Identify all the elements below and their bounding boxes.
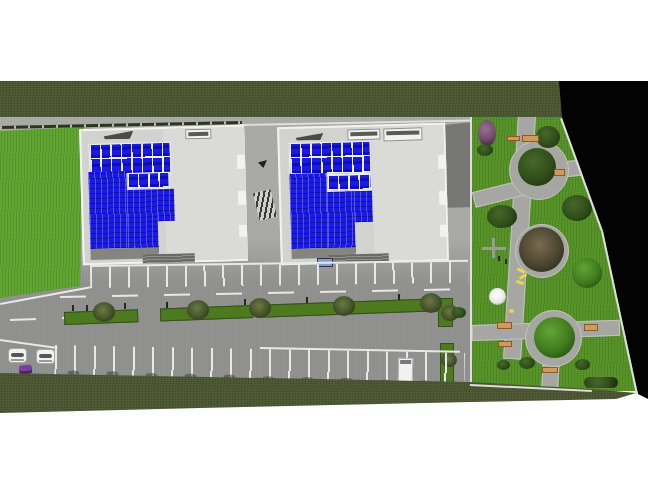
plaza-2-tree [519,227,564,272]
parapet-step [237,155,245,169]
bollard [86,305,88,311]
skylight-panel-row [126,172,169,190]
playground-item [505,259,507,264]
parapet-step [239,225,247,237]
helicopter-toy-icon [492,238,495,258]
playground-item [498,256,500,261]
garden-bush [519,357,535,369]
blue-glazing [354,191,373,222]
roof-box [383,127,422,141]
flowering-tree [478,120,496,146]
median-tree [249,298,271,318]
bollard [306,297,308,303]
playground-dome [489,288,506,305]
blue-glazing [127,189,159,248]
garden-bush [497,360,510,370]
garden-hedge [584,377,618,388]
garden-tree [572,258,602,288]
garden-bush [477,144,493,156]
bench [554,169,565,176]
median-tree [187,300,209,320]
garden-tree [562,195,592,221]
skylight-panel-row [326,174,371,192]
bollard [244,299,246,305]
blue-glazing [157,189,175,221]
bollard [398,294,400,300]
parapet-step [440,225,448,237]
render-viewport[interactable] [0,81,648,413]
playground-item [509,309,514,313]
plaza-3-tree [534,317,575,358]
bench [507,136,520,141]
bollard [124,303,126,309]
car-white [8,348,27,363]
garden-tree [487,205,517,228]
garden-tree [536,126,560,148]
entrance-canopy [143,253,195,263]
car-white [36,349,55,364]
building-west [79,125,248,266]
parapet-step [438,155,446,169]
median-tree [93,302,115,322]
roof-deck [163,127,248,261]
bench [584,324,598,331]
bush [452,307,466,318]
roof-box [347,128,380,140]
median-tree [420,293,442,313]
page: { "scene": { "type": "3d-architectural-s… [0,0,648,492]
bollard [72,305,74,311]
plaza-1-tree [518,148,556,186]
blue-glazing [289,173,328,249]
parapet-step [238,191,246,205]
bollard [166,302,168,308]
garden-bush [575,359,590,370]
median-tree [333,296,355,316]
roof-vent-icon [103,131,133,140]
building-east [277,123,449,266]
bench [497,322,512,329]
roof-box [185,129,211,140]
parapet-step [439,191,447,205]
blue-glazing [88,171,128,249]
bench [542,367,558,373]
van-white [398,358,413,383]
blue-glazing [327,191,356,248]
roof-deck [371,125,447,261]
skylight-panel-grid [289,141,372,176]
roof-vent-icon [295,133,323,141]
bench [522,135,539,142]
bench [498,341,512,347]
car-purple [19,364,33,374]
